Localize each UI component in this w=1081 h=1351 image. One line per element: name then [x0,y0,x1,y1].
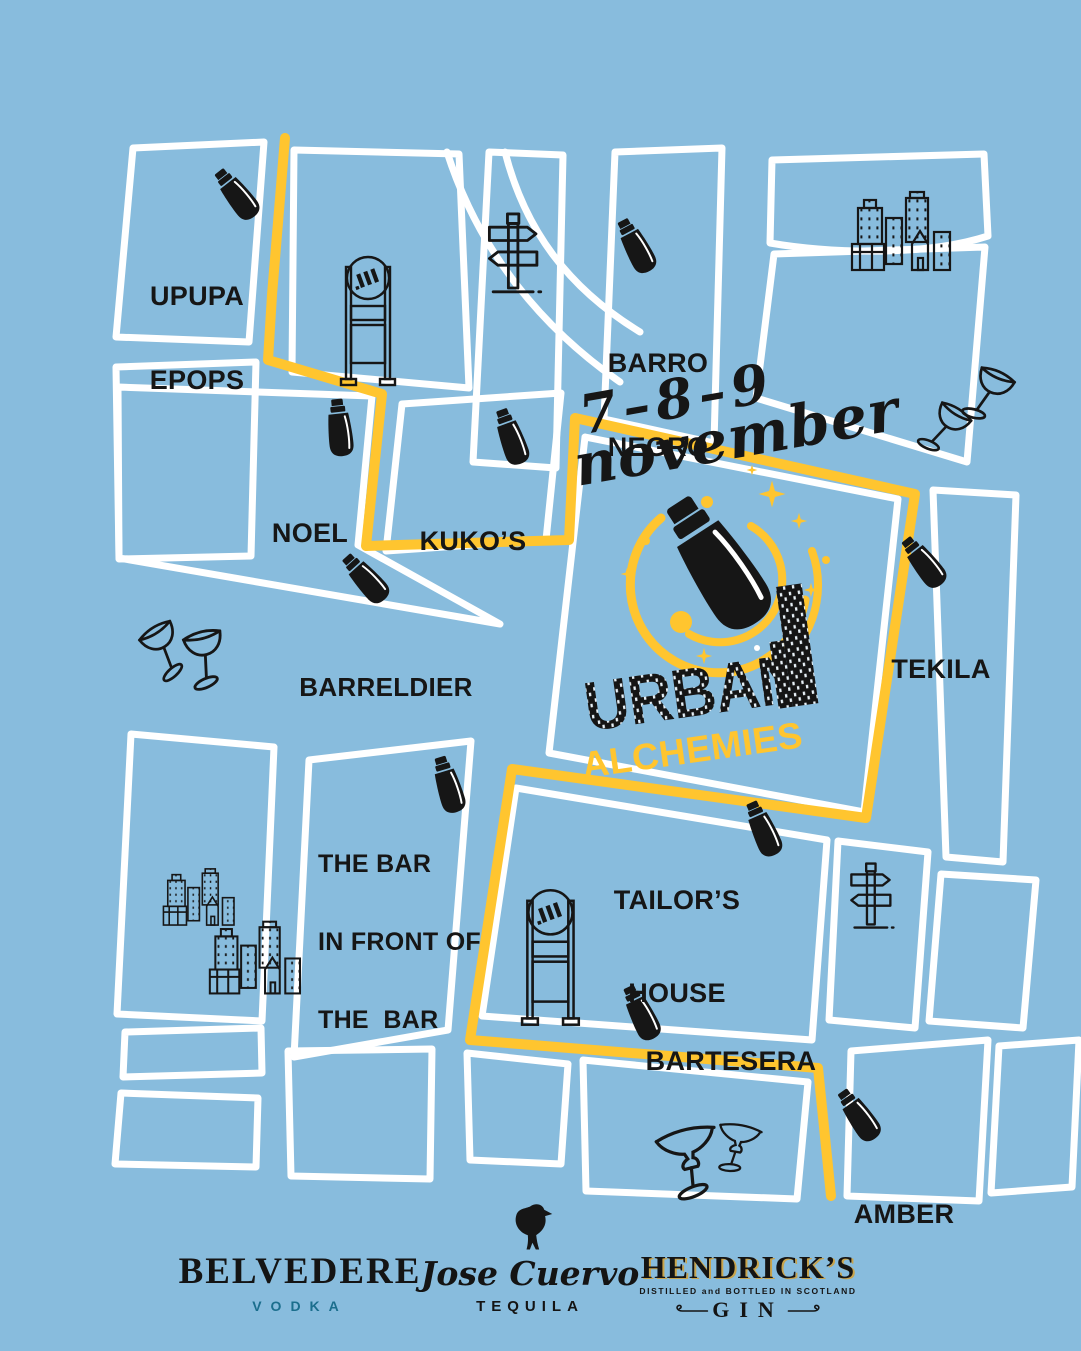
venue-label-line: TAILOR’S [614,885,740,916]
venue-label-kukos: KUKO’S [420,471,527,583]
hendricks-wordmark: HENDRICK’S [639,1250,856,1284]
venue-label-line: UPUPA [150,282,245,310]
venue-label-amber: AMBER [854,1144,955,1256]
venue-label-line: BARTESERA [646,1047,817,1075]
jose-cuervo-type: TEQUILA [421,1298,640,1315]
city-block [929,874,1036,1028]
curved-street [447,152,620,382]
city-buildings-icon [210,922,300,994]
crow-icon-wrap [505,1202,559,1258]
hendricks-tagline: DISTILLED and BOTTLED IN SCOTLAND [639,1286,856,1296]
signpost-icon [851,864,893,928]
venue-label-line: NOEL [272,519,348,547]
cocktail-shaker-icon-amber [832,1085,885,1146]
venue-label-noel: NOEL [272,463,348,575]
jose-cuervo-wordmark: Jose Cuervo [421,1256,640,1292]
venue-label-line: KUKO’S [420,527,527,555]
belvedere-wordmark: BELVEDERE [179,1252,422,1292]
venue-label-line: AMBER [854,1200,955,1228]
crow-icon [505,1202,559,1253]
ad-panel-icon [522,890,579,1024]
city-block [467,1053,568,1164]
city-block [829,841,928,1028]
ad-panel-icon [341,257,395,385]
venue-label-line: IN FRONT OF [318,929,481,955]
city-block [288,1049,432,1179]
venue-label-upupa-epops: UPUPA EPOPS [150,226,245,422]
cocktail-shaker-icon-noel [325,398,355,458]
sponsor-belvedere: BELVEDERE VODKA [179,1252,422,1314]
event-map-poster: URBAN ALCHEMIES UPUPA EPOPS NOEL KUKO’S … [0,0,1081,1351]
flourish-icon [674,1303,708,1317]
coupe-glasses-icon [137,618,197,684]
margarita-glasses-icon [713,1122,763,1177]
venue-label-line: THE BAR [318,851,481,877]
city-buildings-icon [163,869,234,925]
city-block [292,150,469,388]
venue-label-tekila: TEKILA [891,599,990,711]
city-block [115,1093,258,1167]
venue-label-line: TEKILA [891,655,990,683]
hendricks-gin-row: GIN [639,1297,856,1323]
venue-label-bartesera: BARTESERA [646,991,817,1103]
sponsor-hendricks: HENDRICK’S DISTILLED and BOTTLED IN SCOT… [639,1250,856,1323]
venue-label-line: EPOPS [150,366,245,394]
city-block [123,1028,262,1077]
venue-label-the-bar-in-front-of-the-bar: THE BAR IN FRONT OF THE BAR [318,799,481,1059]
cocktail-shaker-icon-barro [612,215,660,277]
city-buildings-icon [852,192,950,270]
coupe-glasses-icon [182,627,233,692]
venue-label-line: BARRELDIER [299,673,472,701]
cocktail-shaker-icon-kukos [490,406,532,468]
cocktail-shaker-icon-upupa [209,164,263,224]
venue-label-barreldier: BARRELDIER [299,617,472,729]
city-block [991,1040,1079,1193]
belvedere-type: VODKA [179,1298,422,1314]
flourish-icon [788,1303,822,1317]
sponsor-jose-cuervo: Jose Cuervo TEQUILA [421,1256,640,1315]
venue-label-line: THE BAR [318,1007,481,1033]
hendricks-type: GIN [712,1297,784,1323]
